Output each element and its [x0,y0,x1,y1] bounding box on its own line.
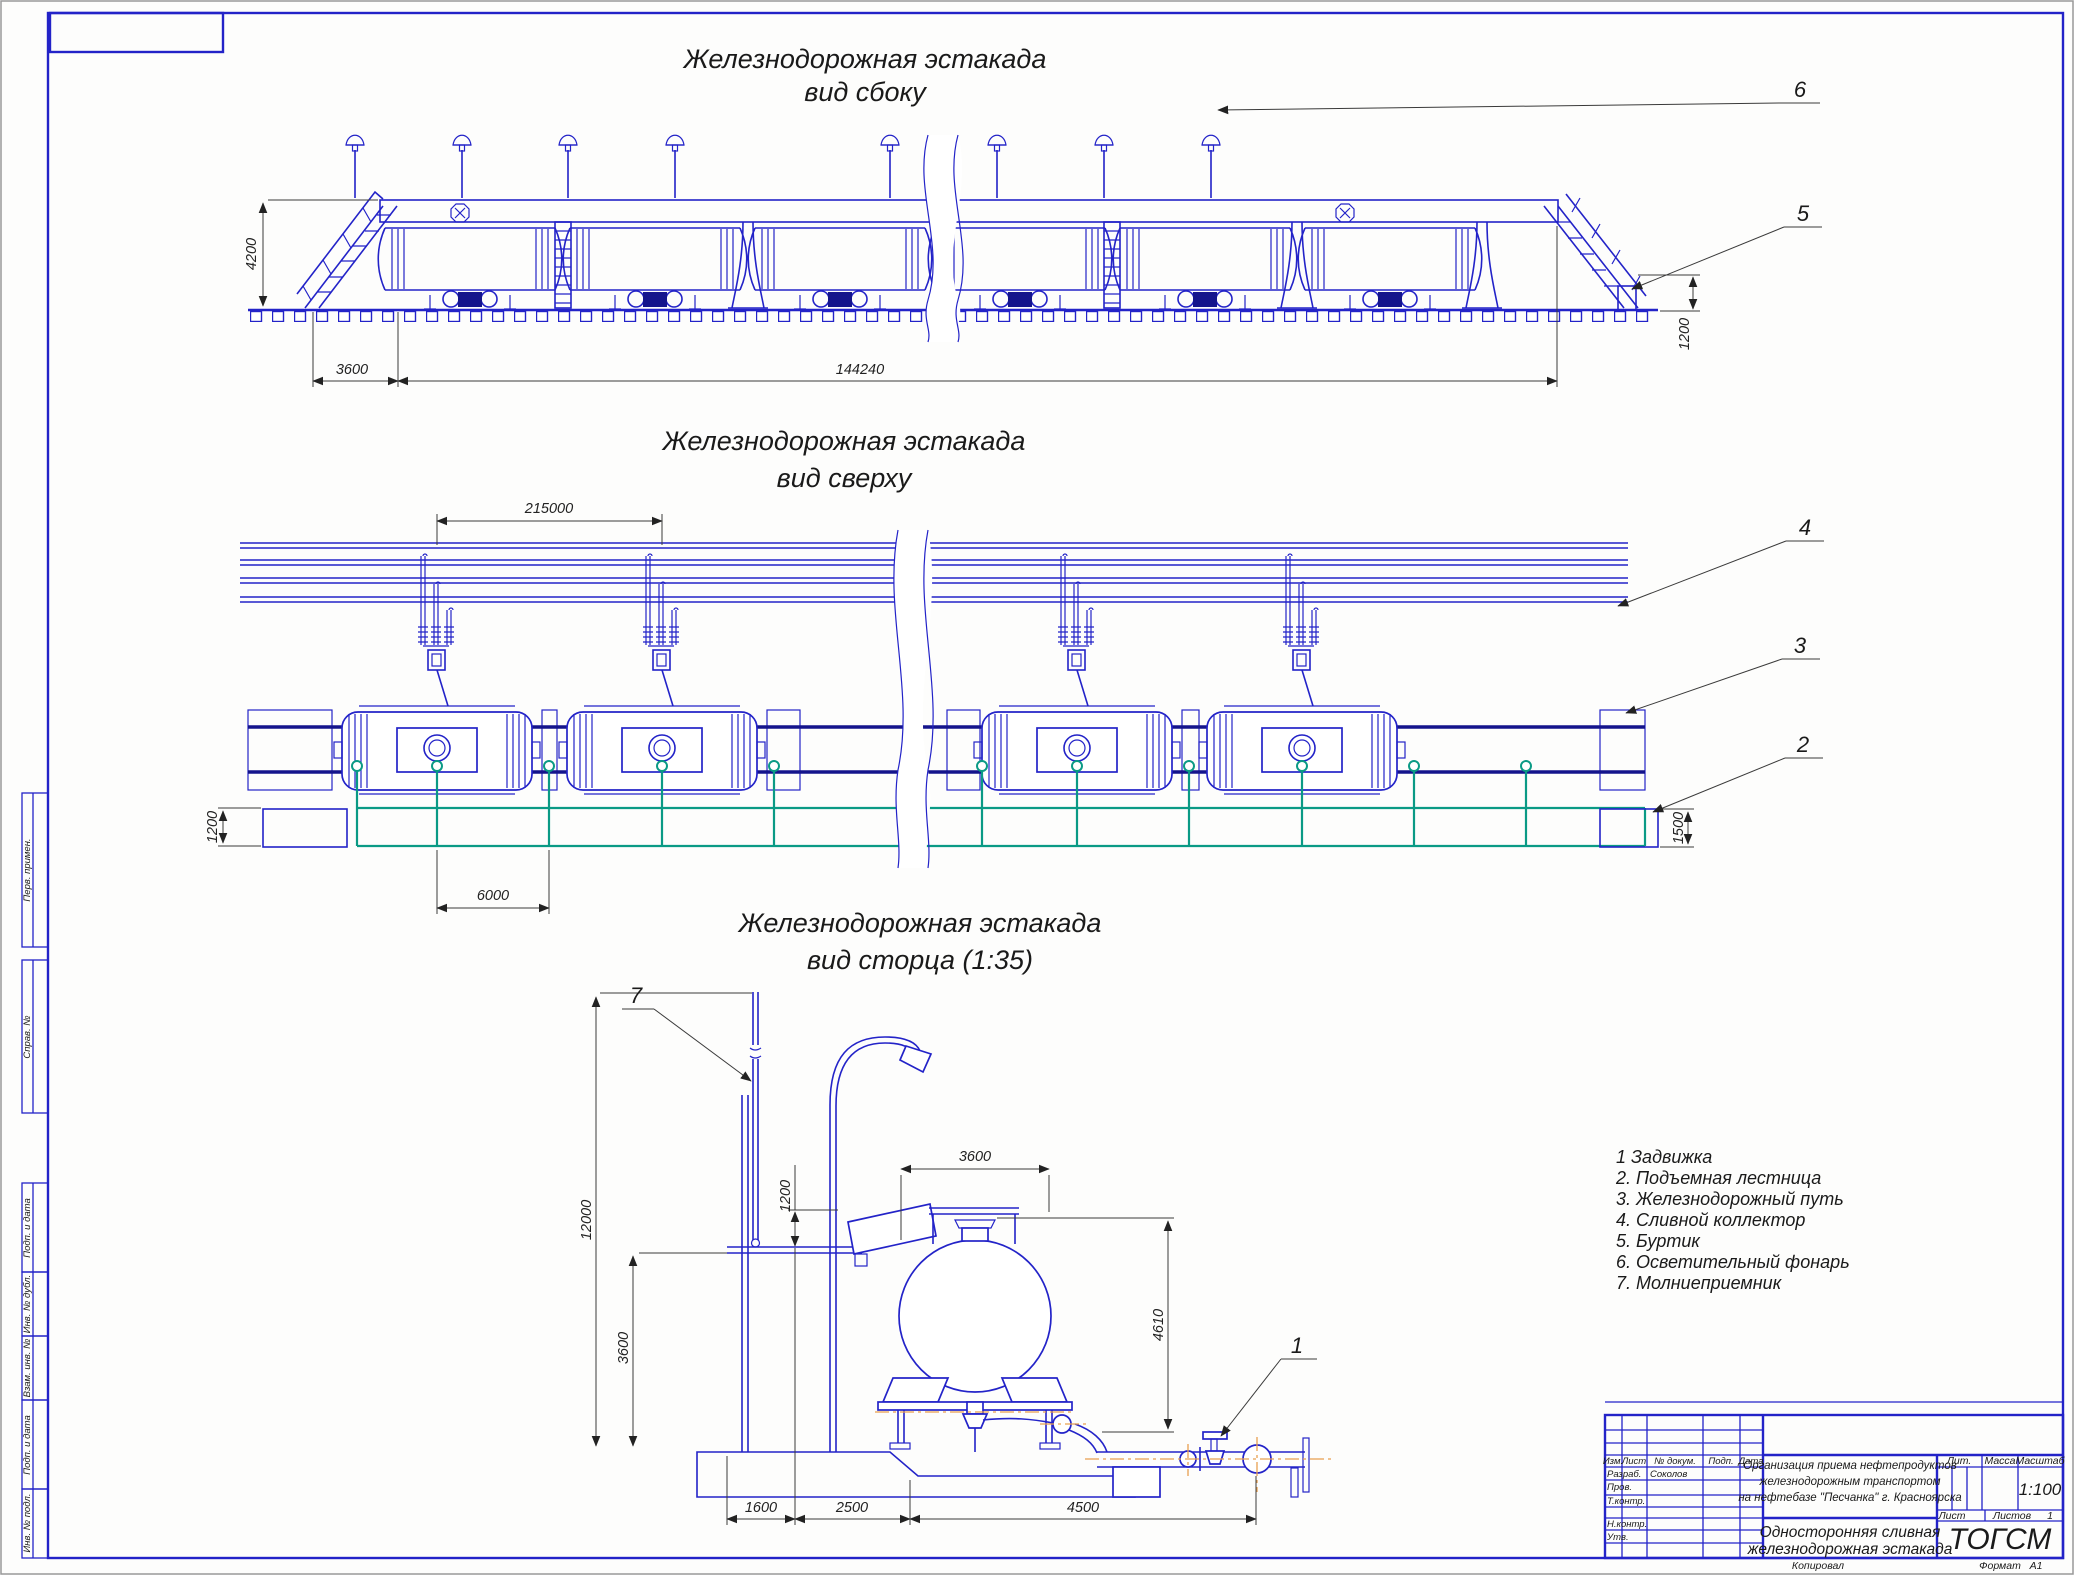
dim-plan-ladder-width: 1200 [205,811,221,843]
footer-format-label: Формат [1979,1560,2021,1572]
dim-end-b1: 1600 [745,1500,777,1516]
margin-label: Взам. инв. № [22,1339,33,1398]
dim-end-b2: 2500 [835,1500,868,1516]
top-left-stamp [50,13,223,52]
dim-plan-span: 215000 [524,501,573,517]
side-view-title-line2: вид сбоку [804,77,927,107]
tb-row-tkontr: Т.контр. [1607,1496,1645,1507]
dim-side-curb: 1200 [1677,318,1693,350]
dim-side-length: 144240 [836,362,884,378]
plan-view: Железнодорожная эстакада вид сверху [205,426,1824,914]
dim-end-deck: 3600 [616,1332,632,1364]
margin-label: Инв. № дубл. [22,1275,33,1333]
callout-4: 4 [1799,515,1811,540]
tb-project-line1: Организация приема нефтепродуктов [1743,1460,1956,1472]
drawing-sheet: Перв. примен. Справ. № Подп. и дата Инв.… [0,0,2074,1575]
support-column [742,1095,748,1452]
margin-label: Перв. примен. [22,838,33,901]
dim-end-tank: 3600 [959,1149,991,1165]
side-view-callouts: 6 5 [1218,77,1822,289]
tb-doc-title-line1: Односторонняя сливная [1760,1524,1941,1541]
side-view: Железнодорожная эстакада вид сбоку [244,44,1822,387]
tank-cars-plan [334,706,1405,794]
tb-scale: 1:100 [2019,1480,2062,1499]
tb-project-line3: на нефтебазе "Песчанка" г. Красноярска [1738,1492,1961,1504]
foundation-slab [697,1452,1135,1497]
callout-3: 3 [1794,633,1807,658]
tb-doc-title-line2: железнодорожная эстакада [1747,1541,1953,1558]
dim-end-drain: 4610 [1151,1309,1167,1341]
margin-label: Справ. № [22,1015,33,1058]
plan-view-break [894,530,933,868]
end-view: Железнодорожная эстакада вид сторца (1:3… [579,908,1332,1525]
tb-massa: Масса [1984,1455,2015,1467]
tank-car-end [878,1220,1072,1452]
legend-item-1: 1 Задвижка [1616,1147,1712,1167]
title-block: Изм. Лист № докум. Подп. Дата Разраб. Со… [1603,1415,2066,1572]
tb-lit: Лит. [1946,1455,1972,1467]
collector-pipes [240,543,1628,602]
side-view-title-line1: Железнодорожная эстакада [682,44,1047,74]
end-view-title-line1: Железнодорожная эстакада [737,908,1102,938]
dim-plan-drain-spacing: 6000 [477,888,509,904]
tb-row-utv: Утв. [1606,1532,1629,1543]
callout-6: 6 [1794,77,1807,102]
drain-pipe-assembly [983,1415,1309,1497]
legend-item-3: 3. Железнодорожный путь [1616,1189,1844,1209]
ladder-left [263,809,347,847]
footer-format-value: А1 [2029,1560,2043,1572]
right-stair [1544,194,1646,310]
drain-risers [418,554,1319,706]
plan-view-title-line1: Железнодорожная эстакада [661,426,1026,456]
legend: 1 Задвижка 2. Подъемная лестница 3. Желе… [1615,1147,1850,1293]
footer-kopiroval: Копировал [1792,1560,1844,1572]
margin-label: Подп. и дата [22,1415,33,1474]
tb-listov-value: 1 [2047,1510,2053,1522]
walkway-deck [380,200,1558,222]
tb-row-razrab: Разраб. [1607,1469,1641,1480]
tb-col-list: Лист [1621,1456,1647,1467]
margin-boxes: Перв. примен. Справ. № Подп. и дата Инв.… [22,793,48,1558]
lighting-lamps [346,135,1220,198]
tb-col-podp: Подп. [1708,1456,1733,1467]
dim-end-b3: 4500 [1067,1500,1099,1516]
callout-2: 2 [1796,732,1809,757]
callout-5: 5 [1797,201,1810,226]
tb-listov-label: Листов [1992,1510,2032,1522]
tb-col-izm: Изм. [1603,1456,1623,1467]
deck-supports [451,204,1502,308]
tb-razrab-name: Соколов [1650,1469,1687,1480]
end-view-dimensions: 12000 3600 1200 3600 4610 1600 2500 4500 [579,993,1256,1525]
ladder-right [1600,809,1658,847]
legend-item-7: 7. Молниеприемник [1616,1273,1783,1293]
legend-item-5: 5. Буртик [1616,1231,1701,1251]
dim-side-height: 4200 [244,238,260,270]
legend-item-4: 4. Сливной коллектор [1616,1210,1805,1230]
end-view-title-line2: вид сторца (1:35) [807,945,1033,975]
dim-end-gap: 1200 [778,1180,794,1212]
collector-box [1113,1467,1160,1497]
legend-item-6: 6. Осветительный фонарь [1616,1252,1850,1272]
tb-row-prov: Пров. [1607,1482,1632,1493]
curb [1618,286,1636,310]
tb-masshtab: Масштаб [2015,1455,2065,1467]
tb-row-nkontr: Н.контр. [1607,1519,1647,1530]
plan-view-callouts: 4 3 2 [1618,515,1824,812]
lightning-mast [750,992,761,1247]
plan-view-dimensions: 215000 1200 6000 1500 [205,501,1694,914]
drawing-canvas: Перв. примен. Справ. № Подп. и дата Инв.… [0,0,2074,1575]
tb-project-line2: железнодорожным транспортом [1759,1476,1941,1488]
tb-col-doc: № докум. [1654,1456,1696,1467]
legend-item-2: 2. Подъемная лестница [1615,1168,1821,1188]
callout-1: 1 [1291,1333,1303,1358]
margin-label: Инв. № подл. [22,1494,33,1553]
dim-end-mast: 12000 [579,1200,595,1240]
plan-view-title-line2: вид сверху [777,463,913,493]
tb-list-label: Лист [1937,1510,1965,1522]
tb-org: ТОГСМ [1949,1523,2052,1556]
margin-label: Подп. и дата [22,1198,33,1257]
dim-side-ramp: 3600 [336,362,368,378]
lamp-head [900,1046,931,1072]
callout-7: 7 [630,983,643,1008]
left-stair [297,192,397,308]
dim-plan-ladder-right: 1500 [1671,812,1687,844]
